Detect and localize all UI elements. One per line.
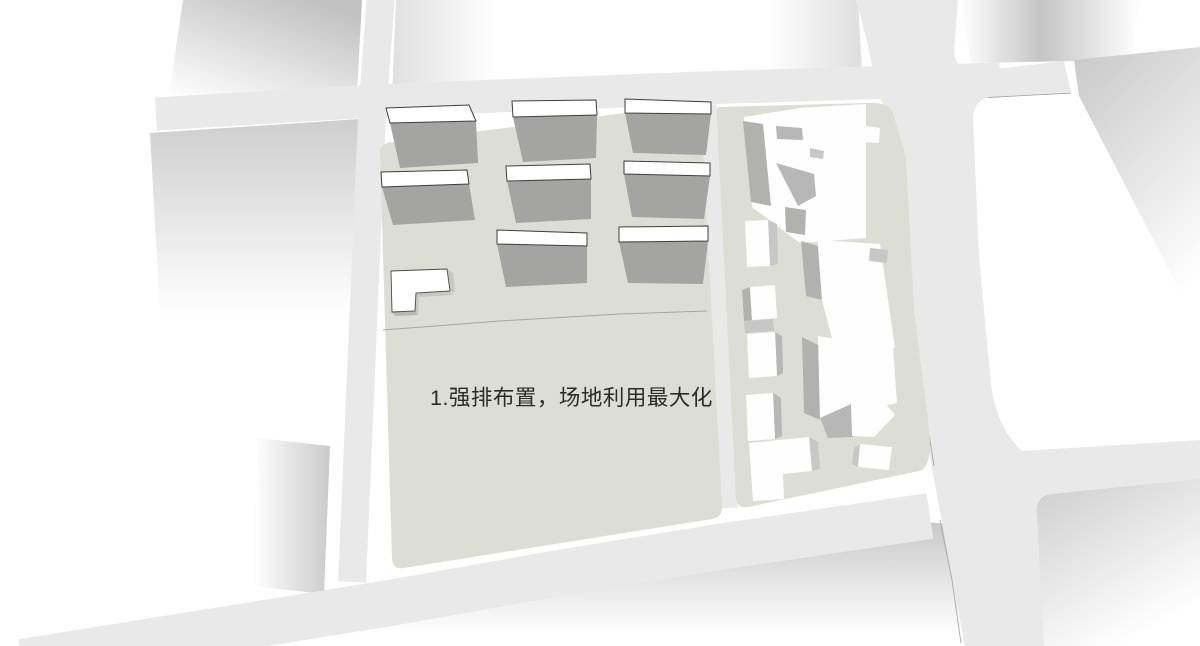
context-block-northeast-upper [960, 0, 1140, 63]
context-block-northwest [168, 0, 362, 102]
building-slab [512, 100, 597, 162]
building-tower [747, 332, 783, 378]
building-slab [619, 226, 708, 284]
building-slab [625, 99, 711, 155]
building-slab [497, 230, 587, 287]
building-tower [742, 285, 777, 333]
building-tower [745, 220, 778, 267]
building-slab [624, 161, 710, 219]
context-block-southwest [252, 438, 330, 594]
site-annotation-label: 1.强排布置，场地利用最大化 [430, 386, 713, 410]
massing-diagram: 1.强排布置，场地利用最大化 [0, 0, 1200, 646]
context-block-west [150, 119, 360, 350]
building-tower [746, 393, 782, 441]
building-slab [506, 164, 591, 223]
site-plan-canvas: 1.强排布置，场地利用最大化 [0, 0, 1200, 646]
building-slab [381, 170, 475, 225]
building-slab [386, 105, 478, 168]
